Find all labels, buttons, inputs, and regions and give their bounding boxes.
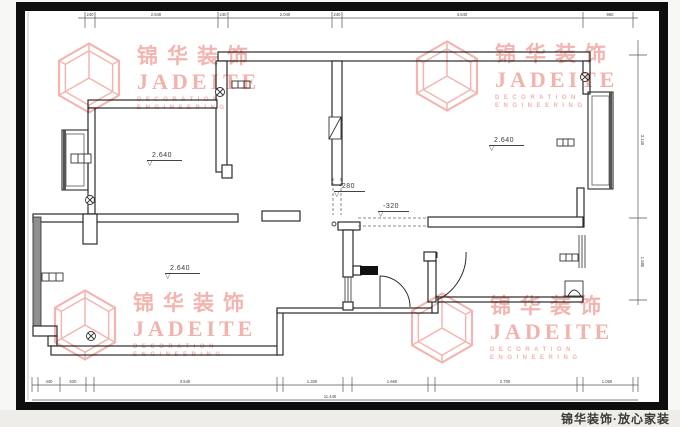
level-value: 2.640 <box>147 152 182 161</box>
wall-room-bottom <box>432 297 583 302</box>
wall-pier <box>83 214 97 244</box>
dim-label: 240 <box>220 12 228 17</box>
toilet-icon <box>565 281 583 296</box>
floor-plan-drawing: 240 2.540 240 2.040 240 4.640 960 440 52… <box>0 0 680 427</box>
level-marker-master: 2.640 ▽ <box>489 137 524 152</box>
level-marker-living: 2.640 ▽ <box>165 265 200 280</box>
window-right-lower <box>579 235 585 268</box>
level-value: 2.640 <box>489 137 524 146</box>
dim-label: 1.060 <box>602 379 613 384</box>
door-arc-room <box>437 252 466 300</box>
wall-bath-left2 <box>343 302 353 310</box>
radiator-icon <box>560 254 578 261</box>
dim-label: 3.140 <box>640 135 645 146</box>
dim-label: 1.580 <box>640 257 645 268</box>
wall-top <box>218 52 590 61</box>
dim-label: 240 <box>334 12 342 17</box>
wall-corner <box>338 222 360 230</box>
dim-label: 1.660 <box>387 379 398 384</box>
wall-step1 <box>33 326 57 336</box>
wall-bedroom-top <box>88 100 217 108</box>
dim-label: 4.640 <box>457 12 468 17</box>
dim-label: 2.540 <box>151 12 162 17</box>
dim-label: 2.040 <box>280 12 291 17</box>
wall-step2 <box>48 336 57 346</box>
dimension-labels: 240 2.540 240 2.040 240 4.640 960 440 52… <box>46 12 646 399</box>
door-arc-bath <box>380 276 410 307</box>
dim-label: 3.540 <box>180 379 191 384</box>
dim-label: 1.300 <box>307 379 318 384</box>
level-triangle-icon: ▽ <box>147 161 182 167</box>
dim-label: 240 <box>87 12 95 17</box>
wall-notch <box>222 165 232 178</box>
wall-living-top <box>33 214 238 222</box>
wall-bedroom-right <box>216 61 227 172</box>
wall-living-right <box>277 310 283 355</box>
footer-bar: 锦华装饰·放心家装 <box>0 410 680 427</box>
level-triangle-icon: ▽ <box>334 192 365 198</box>
level-triangle-icon: ▽ <box>165 274 200 280</box>
level-marker-bedroom: 2.640 ▽ <box>147 152 182 167</box>
wall-kitchen-jamb <box>424 252 436 261</box>
wall-master-bottom <box>428 217 583 227</box>
wall-kitchen <box>428 261 436 302</box>
level-value: 2.640 <box>165 265 200 274</box>
marker-dot-icon <box>332 222 336 226</box>
dim-label: 2.700 <box>500 379 511 384</box>
level-marker-entry-drop: -280 ▽ <box>334 183 365 198</box>
dim-label: 520 <box>70 379 78 384</box>
level-marker-hall-drop: -320 ▽ <box>378 203 409 218</box>
dim-label-total: 11.440 <box>324 394 337 399</box>
wall-living-left <box>33 217 41 327</box>
radiator-icon <box>557 139 574 146</box>
walls-layer <box>33 52 590 355</box>
radiator-icon <box>232 81 250 88</box>
wall-bath-left <box>343 230 353 277</box>
wall-living-top2 <box>262 211 300 221</box>
dim-label: 440 <box>46 379 54 384</box>
level-triangle-icon: ▽ <box>489 146 524 152</box>
wall-entry-bottom <box>277 308 437 313</box>
footer-slogan: 锦华装饰·放心家装 <box>561 411 680 427</box>
door-threshold <box>360 266 378 275</box>
dim-label: 960 <box>607 12 615 17</box>
flue-icon <box>329 117 341 139</box>
wall-living-bottom <box>51 346 278 355</box>
wall-bath-door <box>353 266 361 275</box>
radiator-icon <box>42 273 63 281</box>
radiator-icon <box>71 154 91 163</box>
floor-plan-page: 240 2.540 240 2.040 240 4.640 960 440 52… <box>0 0 680 427</box>
window-bath <box>345 277 351 302</box>
level-triangle-icon: ▽ <box>378 212 409 218</box>
